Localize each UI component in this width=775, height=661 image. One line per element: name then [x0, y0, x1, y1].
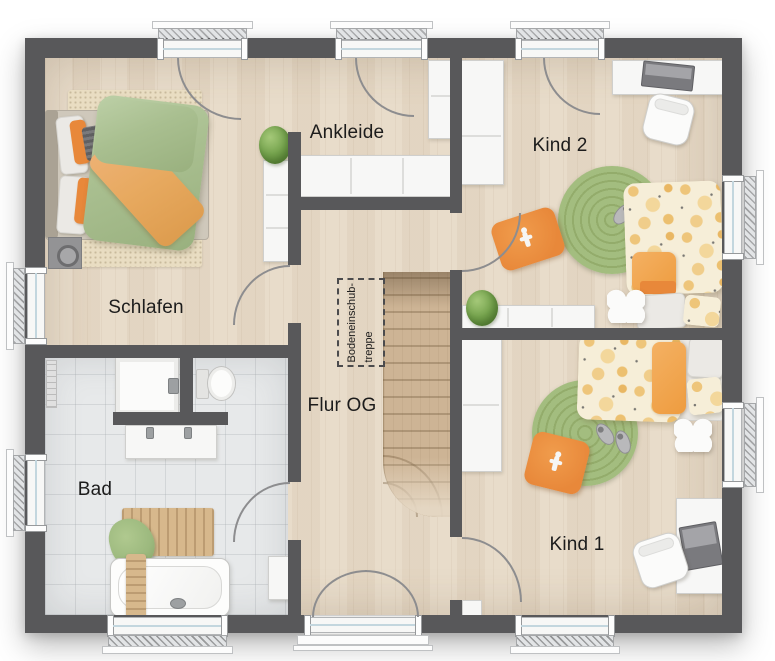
cabinet-divider — [266, 194, 288, 196]
window-sill — [510, 646, 620, 654]
window-glass — [521, 48, 599, 50]
cabinet-divider — [431, 95, 451, 97]
wall-ankleide-flur — [288, 197, 462, 210]
room-label-bad: Bad — [78, 479, 112, 501]
wall-kind2-kind1 — [450, 328, 722, 340]
cabinet-divider — [402, 158, 404, 194]
window-glass — [732, 181, 734, 254]
wall-exterior-right — [722, 38, 742, 633]
cabinet-divider — [266, 227, 288, 229]
cabinet-divider — [350, 158, 352, 194]
window-glass — [732, 408, 734, 482]
nightstand — [48, 237, 82, 269]
window — [724, 178, 742, 257]
sink-faucet — [184, 427, 192, 439]
balcony-sill-outer — [293, 645, 433, 651]
room-label-schlafen: Schlafen — [108, 297, 184, 319]
window-glazing — [13, 455, 25, 531]
window — [110, 617, 225, 635]
window-glazing — [13, 268, 25, 344]
bathtub-caddy — [126, 554, 146, 618]
wall-bath-stub — [180, 355, 193, 419]
wall-schlafen-bad — [45, 345, 301, 358]
wall-bad-flur — [288, 540, 301, 615]
cabinet-divider — [461, 135, 501, 137]
flower-side-table — [674, 416, 712, 452]
wardrobe-kind2 — [458, 60, 504, 185]
balcony-sill — [297, 635, 429, 645]
window-glass — [521, 625, 609, 627]
chair-back — [637, 536, 676, 558]
window-glazing — [516, 28, 604, 40]
window-glass — [341, 48, 422, 50]
window-glass — [163, 48, 242, 50]
window-glass — [35, 273, 37, 339]
attic-ladder-line1: Bodeneinschub- — [346, 283, 358, 363]
bedroom-cabinet — [263, 160, 291, 262]
vanity-double-sink — [125, 425, 217, 459]
wall-schlafen-flur — [288, 323, 301, 345]
sink-faucet — [146, 427, 154, 439]
bathtub-faucet — [170, 598, 186, 609]
room-label-kind1: Kind 1 — [549, 534, 604, 556]
room-label-ankleide: Ankleide — [310, 122, 384, 144]
nightstand-ring — [57, 245, 79, 267]
window-glazing — [744, 176, 756, 259]
green-duvet-fold — [92, 96, 199, 174]
window — [27, 457, 45, 529]
toilet-bowl — [207, 366, 236, 401]
potted-plant — [259, 126, 291, 164]
window — [724, 405, 742, 485]
window — [518, 40, 602, 58]
cabinet-divider — [463, 404, 499, 406]
window — [160, 40, 245, 58]
wall-ankleide-kind2 — [450, 58, 462, 213]
attic-ladder-line2: treppe — [363, 331, 375, 362]
room-label-flur-og: Flur OG — [308, 395, 377, 417]
flower-side-table — [607, 287, 645, 323]
potted-plant — [466, 290, 498, 326]
window-sill — [756, 170, 764, 265]
wall-bad-flur — [288, 358, 301, 482]
shower-faucet — [168, 378, 179, 394]
laptop-kind2 — [641, 60, 695, 91]
window — [338, 40, 425, 58]
bed-kind1-pillow-patterned — [686, 376, 724, 415]
bed-kind2-pillow-patterned — [683, 294, 722, 328]
floor-plan: Bodeneinschub- treppe Schlafen Ankleide … — [0, 0, 775, 661]
cabinet-divider — [551, 308, 553, 327]
bed-kind1-orange-blanket — [652, 342, 686, 414]
cabinet-divider — [507, 308, 509, 327]
window-glass — [35, 460, 37, 526]
window — [518, 617, 612, 635]
door-glass — [310, 624, 416, 626]
door-panel — [462, 600, 482, 616]
wardrobe-kind1 — [460, 337, 502, 472]
bed-kind1-pillow — [687, 337, 726, 379]
room-label-kind2: Kind 2 — [532, 135, 587, 157]
bathroom-cabinet — [268, 556, 290, 600]
wall-flur-kind — [450, 600, 462, 615]
bath-half-wall-shelf — [113, 412, 228, 425]
window-sill — [756, 397, 764, 493]
balcony-double-door — [307, 617, 419, 633]
window-glazing — [158, 28, 247, 40]
wall-flur-kind — [450, 270, 462, 537]
window-sill — [102, 646, 233, 654]
laptop-screen — [645, 64, 692, 80]
towel-radiator — [46, 360, 57, 408]
window-glass — [113, 625, 222, 627]
attic-ladder-annotation: Bodeneinschub- treppe — [337, 278, 385, 367]
laptop-screen — [682, 525, 717, 549]
bed-kind2-orange-band — [640, 281, 676, 294]
attic-ladder-label: Bodeneinschub- treppe — [344, 283, 378, 363]
dressing-room-sideboard — [297, 155, 455, 197]
window-glazing — [744, 403, 756, 487]
window-glazing — [336, 28, 427, 40]
chair-back — [653, 97, 690, 116]
window — [27, 270, 45, 342]
